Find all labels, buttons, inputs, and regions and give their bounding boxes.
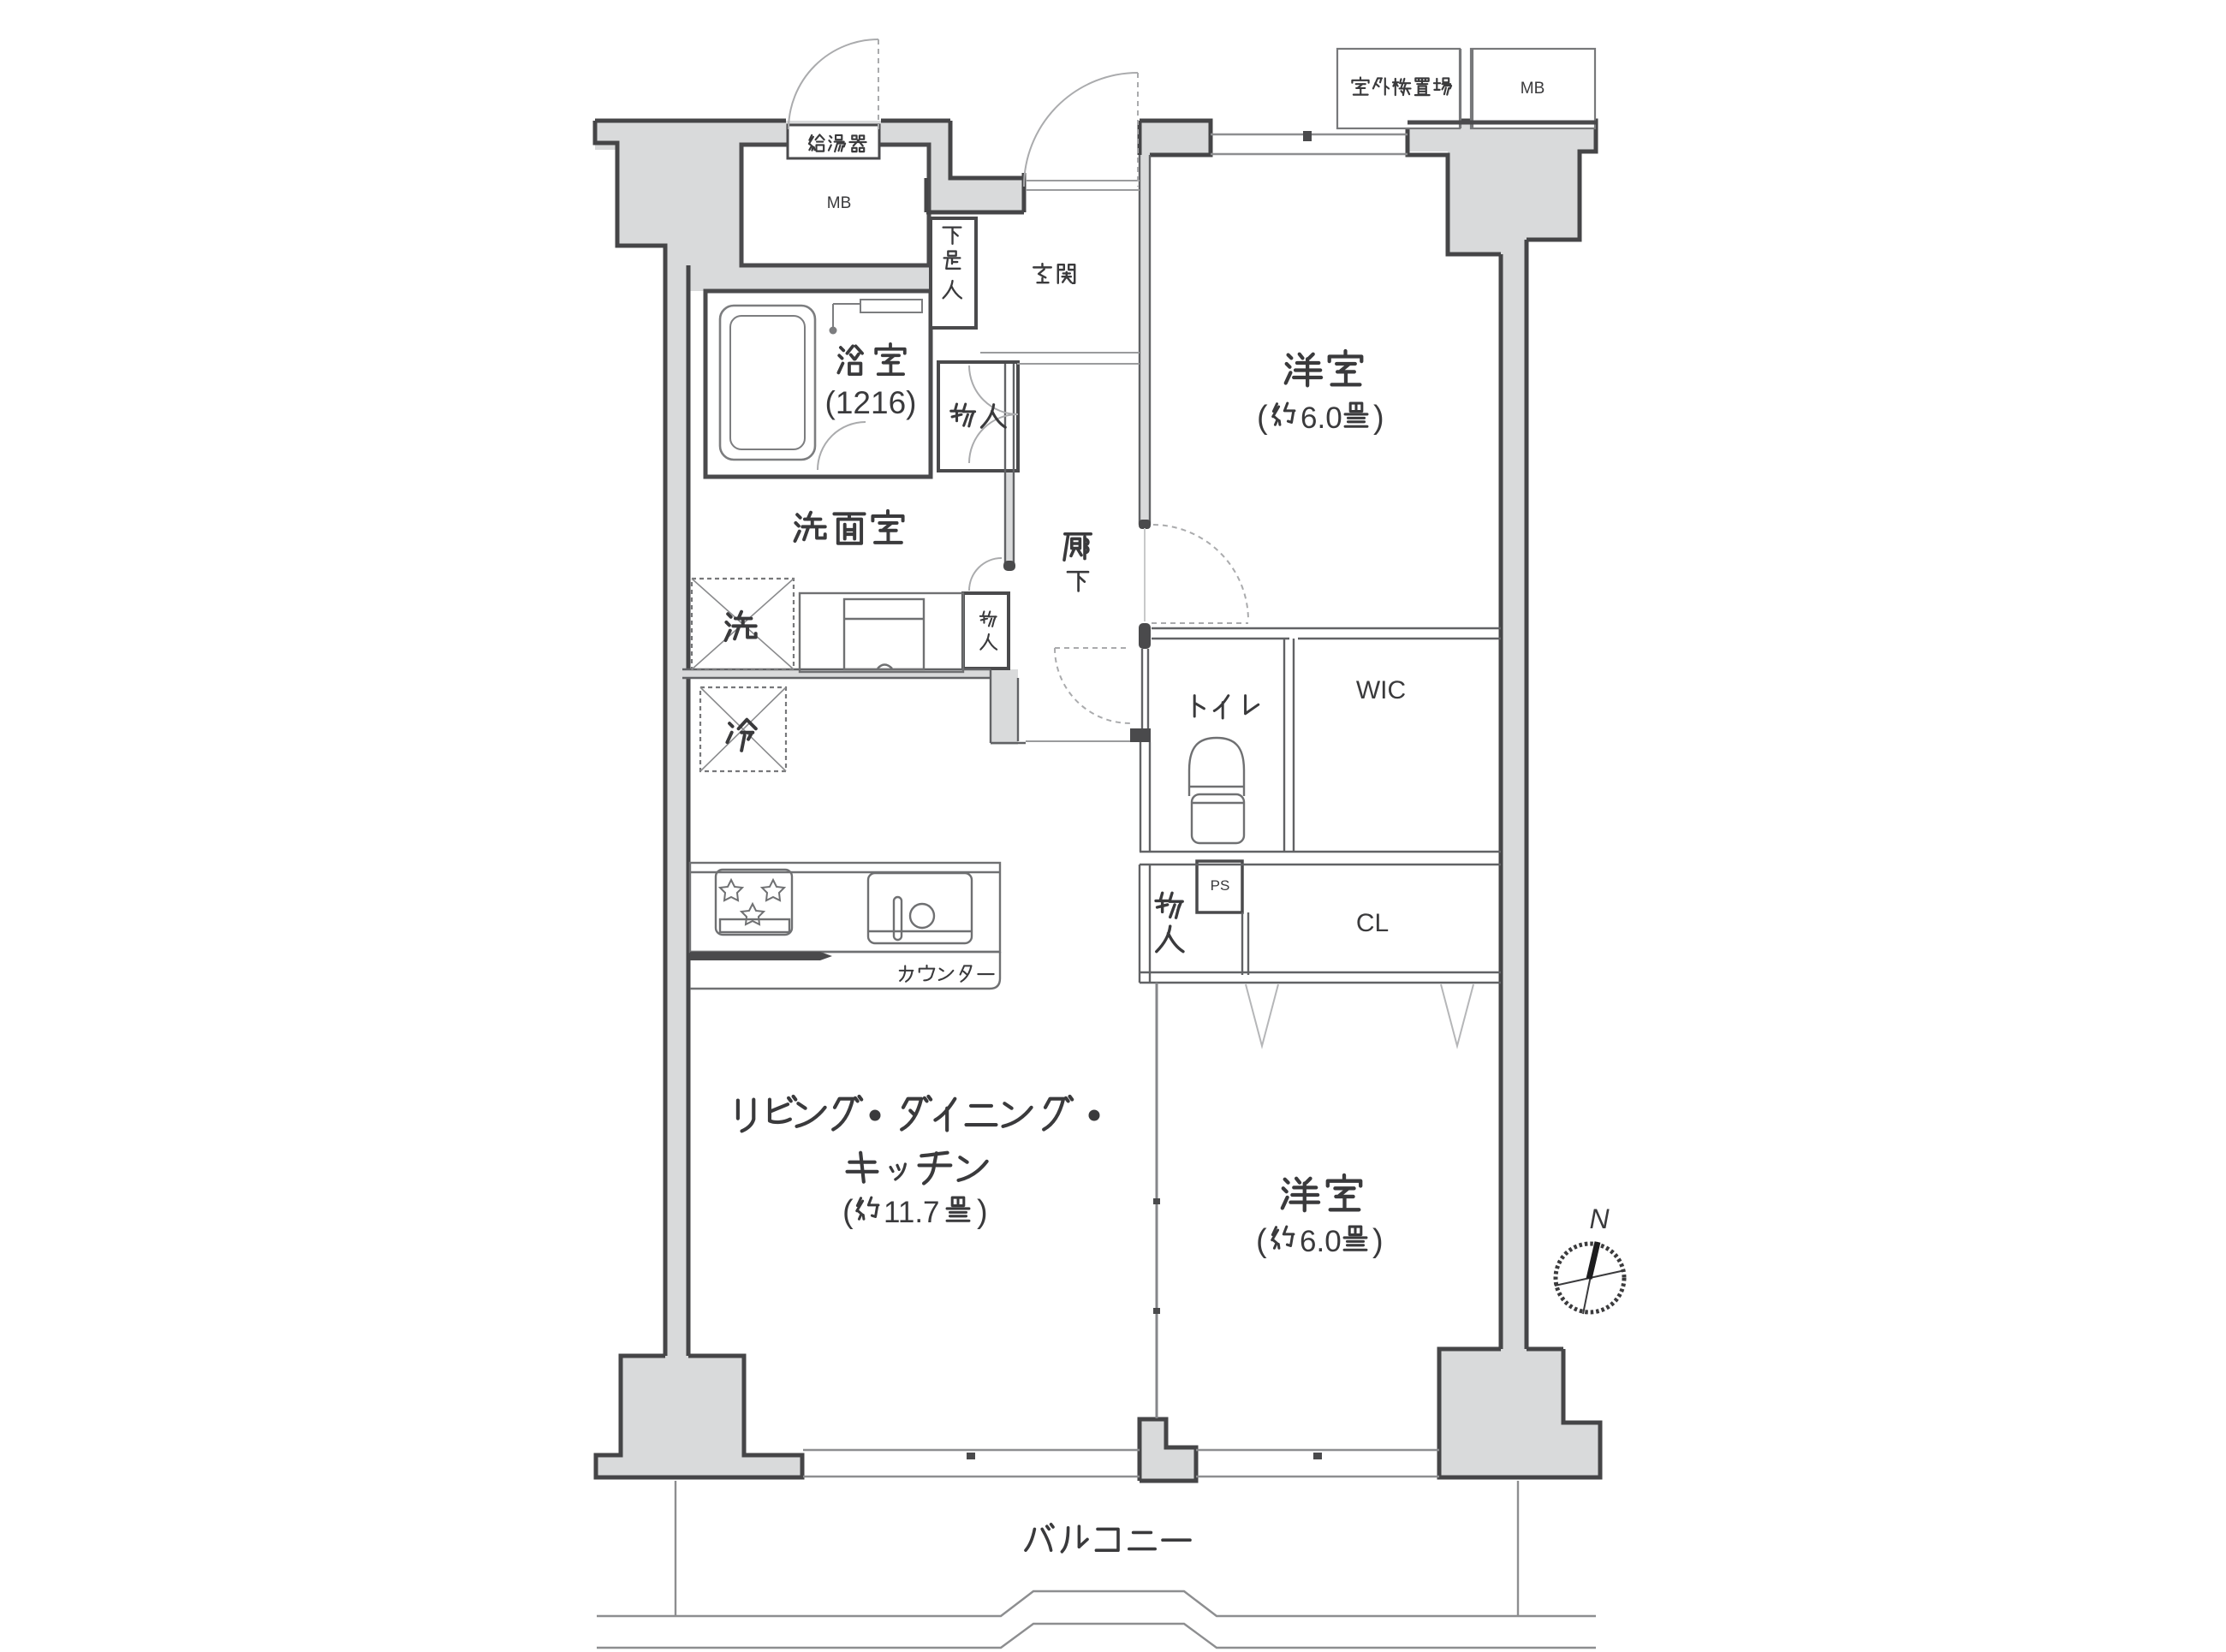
svg-text:6.0: 6.0 (1300, 1225, 1342, 1258)
svg-text:WIC: WIC (1356, 676, 1406, 704)
svg-text:(: ( (1257, 400, 1268, 436)
svg-text:(1216): (1216) (825, 385, 917, 420)
svg-text:): ) (977, 1194, 988, 1230)
svg-text:6.0: 6.0 (1300, 401, 1342, 435)
svg-text:MB: MB (1521, 80, 1545, 98)
svg-text:(: ( (842, 1194, 854, 1230)
svg-text:MB: MB (827, 194, 852, 212)
svg-text:): ) (1372, 1223, 1384, 1259)
svg-text:CL: CL (1356, 909, 1389, 937)
svg-text:(: ( (1256, 1223, 1267, 1259)
svg-text:PS: PS (1211, 877, 1230, 894)
svg-text:11.7: 11.7 (884, 1196, 940, 1229)
svg-text:N: N (1589, 1203, 1610, 1234)
svg-text:): ) (1373, 400, 1384, 436)
